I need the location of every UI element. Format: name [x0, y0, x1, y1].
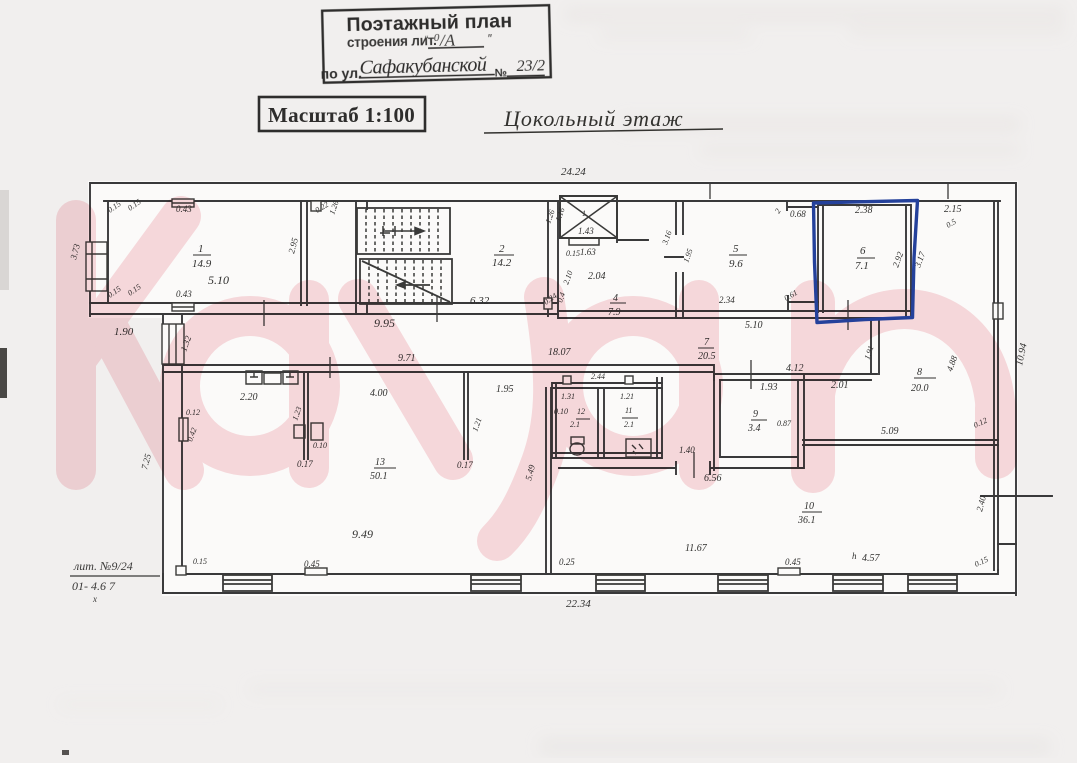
- svg-text:1: 1: [198, 243, 204, 255]
- svg-text:5: 5: [733, 243, 739, 255]
- svg-text:2.44: 2.44: [591, 372, 605, 381]
- svg-text:1.95: 1.95: [496, 384, 514, 395]
- svg-text:23/2: 23/2: [516, 57, 545, 75]
- svg-text:1: 1: [582, 209, 586, 218]
- svg-text:“: “: [425, 34, 429, 46]
- svg-text:5.10: 5.10: [208, 273, 229, 287]
- svg-text:4.57: 4.57: [862, 553, 881, 564]
- svg-text:22.34: 22.34: [566, 598, 591, 610]
- svg-text:24.24: 24.24: [561, 166, 586, 178]
- svg-text:11: 11: [625, 406, 632, 415]
- svg-text:36.1: 36.1: [797, 515, 816, 526]
- svg-text:20.0: 20.0: [911, 383, 929, 394]
- svg-text:0.87: 0.87: [777, 419, 792, 428]
- svg-text:2.38: 2.38: [855, 205, 873, 216]
- svg-text:13: 13: [375, 457, 385, 468]
- svg-text:9.49: 9.49: [352, 527, 373, 541]
- svg-text:8: 8: [917, 367, 922, 378]
- svg-text:№: №: [495, 67, 508, 79]
- svg-text:0.45: 0.45: [785, 557, 801, 567]
- svg-text:9.6: 9.6: [729, 258, 743, 270]
- svg-text:строения лит.: строения лит.: [347, 33, 437, 50]
- svg-text:1.43: 1.43: [578, 226, 594, 236]
- svg-text:10: 10: [804, 501, 814, 512]
- svg-text:1.21: 1.21: [620, 392, 634, 401]
- svg-text:0.43: 0.43: [176, 289, 192, 299]
- svg-text:0.15: 0.15: [193, 557, 207, 566]
- svg-text:4.00: 4.00: [370, 388, 388, 399]
- svg-text:6: 6: [860, 245, 866, 257]
- svg-text:1.63: 1.63: [580, 247, 596, 257]
- svg-text:0.68: 0.68: [790, 209, 806, 219]
- svg-text:5.10: 5.10: [745, 320, 763, 331]
- svg-text:по ул.: по ул.: [320, 65, 362, 82]
- svg-text:6.32: 6.32: [470, 295, 490, 307]
- svg-text:2.1: 2.1: [624, 420, 634, 429]
- svg-text:14.9: 14.9: [192, 258, 212, 270]
- svg-text:11.67: 11.67: [685, 543, 708, 554]
- svg-text:2.15: 2.15: [944, 204, 962, 215]
- svg-text:0.45: 0.45: [304, 559, 320, 569]
- svg-text:лит. №9/24: лит. №9/24: [73, 559, 133, 573]
- svg-text:2.34: 2.34: [719, 295, 735, 305]
- svg-text:Цокольный этаж: Цокольный этаж: [503, 106, 684, 131]
- svg-text:01- 4.6 7: 01- 4.6 7: [72, 579, 116, 593]
- svg-text:2.20: 2.20: [240, 392, 258, 403]
- svg-text:0.15: 0.15: [566, 249, 580, 258]
- svg-text:9: 9: [753, 409, 758, 420]
- svg-text:5.09: 5.09: [881, 426, 899, 437]
- svg-text:1.93: 1.93: [760, 382, 778, 393]
- svg-text:14.2: 14.2: [492, 257, 512, 269]
- svg-text:/А: /А: [439, 30, 456, 49]
- svg-text:2: 2: [499, 243, 505, 255]
- svg-text:2.04: 2.04: [588, 271, 606, 282]
- svg-text:h: h: [852, 551, 857, 561]
- svg-text:0.25: 0.25: [559, 557, 575, 567]
- svg-text:Масштаб 1:100: Масштаб 1:100: [268, 103, 415, 127]
- svg-text:50.1: 50.1: [370, 471, 388, 482]
- svg-text:x: x: [92, 594, 97, 604]
- svg-text:3.4: 3.4: [747, 423, 761, 434]
- svg-text:7.1: 7.1: [855, 260, 869, 272]
